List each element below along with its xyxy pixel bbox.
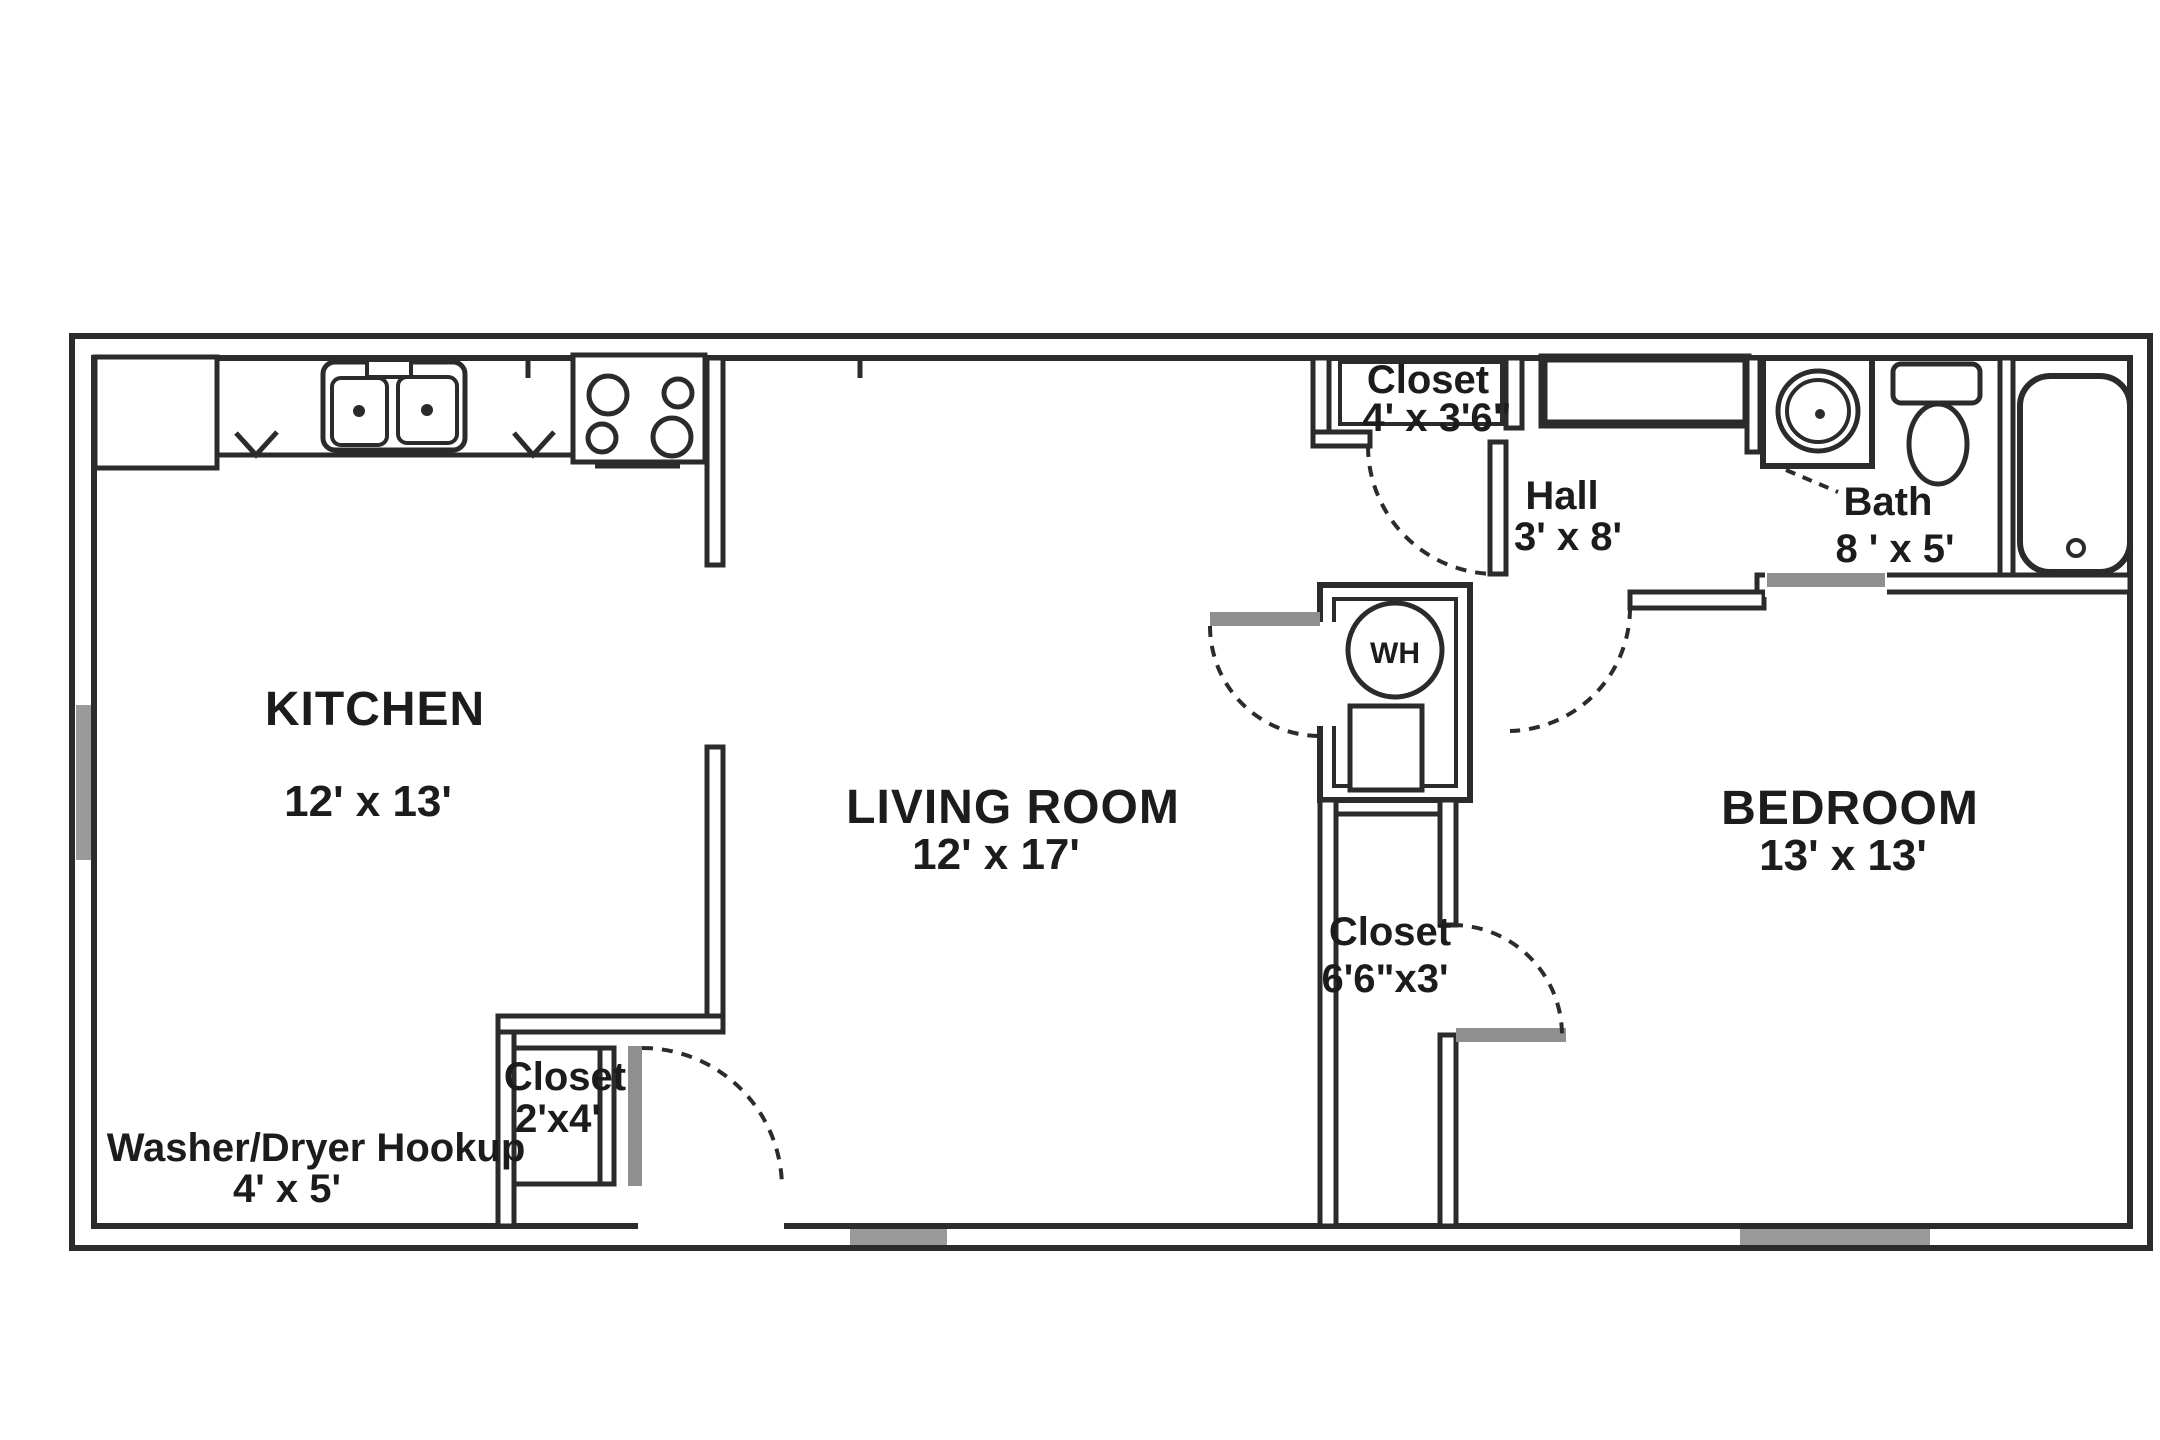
hall-closet-door-swing bbox=[1368, 446, 1496, 574]
washer-dryer-label: Washer/Dryer Hookup bbox=[107, 1126, 526, 1170]
living-room-dims: 12' x 17' bbox=[912, 830, 1080, 879]
bath-label-leader bbox=[1786, 470, 1838, 492]
furnace-unit bbox=[1350, 706, 1422, 790]
wh-door-leaf bbox=[1210, 612, 1320, 626]
living-room-window bbox=[850, 1229, 947, 1245]
divider-lower-wall bbox=[707, 747, 723, 1020]
bath-dims: 8 ' x 5' bbox=[1835, 527, 1954, 571]
front-door-swing bbox=[642, 1048, 782, 1188]
hall-dims: 3' x 8' bbox=[1514, 515, 1622, 559]
bath-label: Bath bbox=[1844, 480, 1933, 524]
double-sink bbox=[323, 360, 465, 450]
front-door-leaf bbox=[628, 1046, 642, 1186]
sink-drain-left bbox=[353, 405, 365, 417]
bedroom-closet bbox=[1320, 800, 1566, 1226]
kitchen-dims: 12' x 13' bbox=[284, 777, 452, 826]
hall-cabinet bbox=[1543, 358, 1747, 424]
cabinet-mark-right bbox=[514, 432, 554, 455]
bedroom-closet-dims: 6'6"x3' bbox=[1322, 957, 1449, 1001]
tub-partition-wall bbox=[2000, 358, 2013, 592]
sink-faucet bbox=[367, 360, 411, 377]
hall-label: Hall bbox=[1525, 474, 1598, 518]
bedroom-dims: 13' x 13' bbox=[1759, 831, 1927, 880]
bedroom-walls bbox=[1510, 569, 2130, 731]
water-heater-closet bbox=[1210, 585, 1470, 800]
cabinet-mark-left bbox=[236, 432, 277, 455]
refrigerator bbox=[95, 357, 217, 468]
bedroom-closet-door-leaf bbox=[1456, 1028, 1566, 1042]
bedroom-top-wall bbox=[1630, 592, 1764, 608]
front-door-opening bbox=[638, 1214, 784, 1240]
stove bbox=[573, 355, 705, 464]
bedroom-closet-right-upper bbox=[1440, 800, 1456, 925]
bath-door-leaf bbox=[1767, 573, 1885, 587]
hall-left-wall bbox=[1490, 442, 1506, 574]
bathtub bbox=[2020, 376, 2130, 572]
water-heater-label: WH bbox=[1370, 637, 1420, 670]
floor-plan-page: KITCHEN 12' x 13' LIVING ROOM 12' x 17' … bbox=[0, 0, 2160, 1440]
toilet-tank bbox=[1893, 364, 1980, 403]
divider-upper-wall bbox=[707, 358, 723, 565]
room-labels: KITCHEN 12' x 13' LIVING ROOM 12' x 17' … bbox=[107, 358, 1979, 1211]
bedroom-closet-label: Closet bbox=[1329, 910, 1451, 954]
floor-plan-drawing: KITCHEN 12' x 13' LIVING ROOM 12' x 17' … bbox=[0, 0, 2160, 1440]
kitchen-fixtures bbox=[95, 355, 860, 468]
bedroom-closet-right-lower bbox=[1440, 1035, 1456, 1226]
kitchen-label: KITCHEN bbox=[265, 683, 485, 736]
bedroom-door-swing bbox=[1510, 608, 1630, 731]
bath-left-wall bbox=[1747, 358, 1760, 452]
bath-sink-drain bbox=[1815, 409, 1825, 419]
entry-closet-dims: 2'x4' bbox=[515, 1097, 601, 1141]
toilet-bowl bbox=[1909, 404, 1967, 484]
bedroom-closet-door-swing bbox=[1452, 925, 1562, 1035]
bedroom-label: BEDROOM bbox=[1721, 782, 1979, 835]
kitchen-side-window bbox=[76, 705, 91, 860]
nook-top-wall bbox=[498, 1016, 723, 1032]
bedroom-closet-left-wall bbox=[1320, 800, 1336, 1226]
wh-door-swing bbox=[1210, 626, 1320, 736]
entry-closet-label: Closet bbox=[504, 1055, 626, 1099]
hall-closet-dims: 4' x 3'6" bbox=[1362, 396, 1511, 440]
washer-dryer-dims: 4' x 5' bbox=[233, 1167, 341, 1211]
living-room-label: LIVING ROOM bbox=[846, 781, 1180, 834]
wh-door-opening bbox=[1310, 622, 1346, 726]
bedroom-window bbox=[1740, 1229, 1930, 1245]
sink-drain-right bbox=[421, 404, 433, 416]
